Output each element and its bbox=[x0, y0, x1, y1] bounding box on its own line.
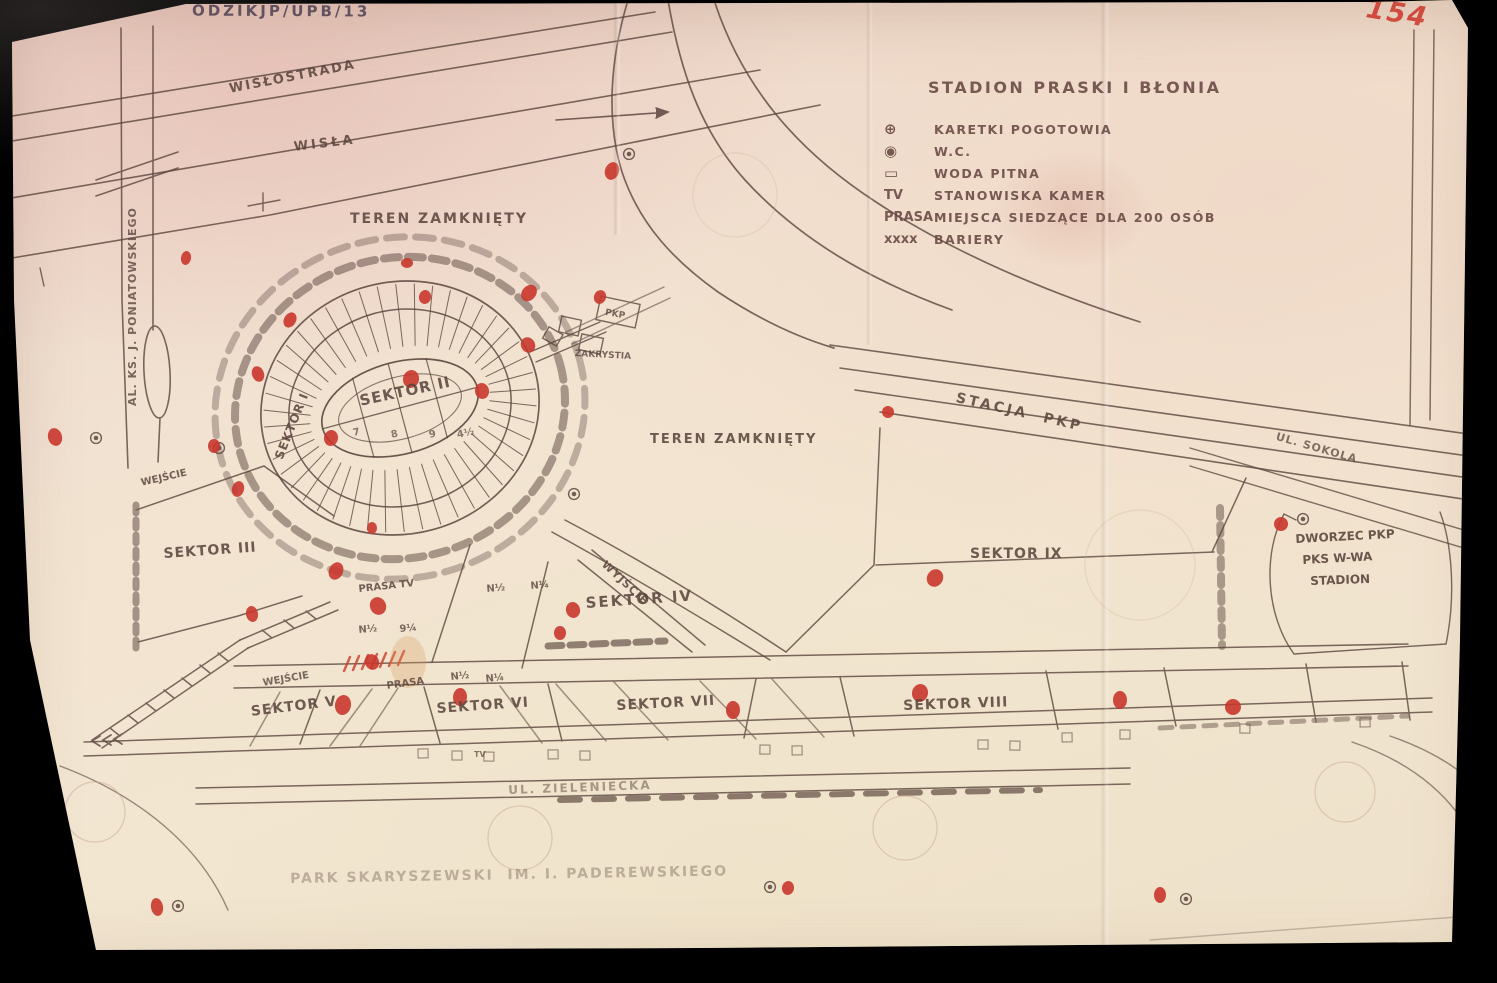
red-mark bbox=[564, 600, 582, 619]
barrier-square bbox=[580, 751, 590, 760]
facility-circle-icon bbox=[91, 433, 102, 444]
barrier-square bbox=[1120, 730, 1130, 739]
stadium-spoke bbox=[277, 351, 321, 398]
legend-label-press: MIEJSCA SIEDZĄCE DLA 200 OSÓB bbox=[934, 210, 1216, 225]
red-mark bbox=[180, 250, 192, 266]
stadium-spoke bbox=[406, 467, 425, 529]
barrier-square bbox=[1010, 741, 1020, 750]
stadium-spoke bbox=[477, 342, 523, 370]
red-mark bbox=[363, 652, 382, 672]
stadium-spoke bbox=[484, 408, 530, 450]
barrier-square bbox=[792, 746, 802, 755]
right-road bbox=[1410, 30, 1434, 425]
red-mark bbox=[1113, 691, 1127, 709]
red-mark bbox=[326, 560, 346, 582]
stadium-spoke bbox=[286, 337, 328, 389]
stadium bbox=[176, 196, 623, 621]
legend-label-water: WODA PITNA bbox=[934, 166, 1040, 181]
red-mark bbox=[46, 426, 64, 447]
red-mark bbox=[401, 368, 421, 390]
facility-circle-icon bbox=[173, 901, 184, 912]
legend-row-water: ▭ WODA PITNA bbox=[884, 162, 1216, 184]
stadium-spoke bbox=[264, 399, 310, 427]
map-title: STADION PRASKI I BŁONIA bbox=[928, 78, 1222, 97]
southwest-entrance bbox=[92, 640, 248, 748]
red-mark bbox=[245, 605, 260, 623]
red-mark bbox=[323, 429, 340, 447]
park-paths bbox=[60, 736, 1497, 940]
legend-row-ambulance: ⊕ KARETKI POGOTOWIA bbox=[884, 118, 1216, 140]
barrier-square bbox=[1062, 733, 1072, 742]
stadium-spoke bbox=[268, 432, 311, 444]
stadium-spoke bbox=[388, 470, 413, 532]
red-mark bbox=[882, 406, 894, 418]
press-marker-symbol: PRASA bbox=[884, 210, 934, 225]
stadium-spoke bbox=[479, 417, 523, 464]
stadium-spoke bbox=[265, 415, 310, 435]
red-mark bbox=[518, 335, 538, 356]
legend-label-barriers: BARIERY bbox=[934, 232, 1005, 247]
red-mark bbox=[554, 626, 566, 640]
wc-circle-icon: ◉ bbox=[884, 142, 934, 160]
stadium-spoke bbox=[472, 426, 514, 478]
facility-circle-icon bbox=[1298, 514, 1309, 525]
stadium-spoke bbox=[342, 297, 367, 359]
red-mark bbox=[1225, 699, 1241, 715]
red-mark bbox=[367, 522, 377, 534]
barrier-square bbox=[418, 749, 428, 758]
facility-circle-icon bbox=[624, 149, 635, 160]
stadium-spoke bbox=[270, 367, 316, 409]
stadium-spoke bbox=[277, 447, 323, 475]
red-mark bbox=[333, 694, 352, 716]
red-mark bbox=[452, 687, 468, 706]
legend-row-tv: TV STANOWISKA KAMER bbox=[884, 184, 1216, 206]
red-mark bbox=[150, 897, 165, 917]
stadium-spoke bbox=[455, 443, 489, 502]
red-mark bbox=[924, 566, 947, 590]
legend-label-ambulance: KARETKI POGOTOWIA bbox=[934, 122, 1112, 137]
red-mark bbox=[1154, 887, 1166, 903]
stadium-spoke bbox=[449, 306, 493, 353]
facility-circle-icon bbox=[569, 489, 580, 500]
barrier-square bbox=[760, 745, 770, 754]
barrier-square bbox=[548, 750, 558, 759]
facility-circle-icon bbox=[1181, 894, 1192, 905]
stadium-spoke bbox=[459, 316, 505, 358]
red-mark bbox=[418, 289, 432, 305]
left-avenue bbox=[96, 26, 178, 468]
red-mark bbox=[726, 701, 740, 719]
stadium-spoke bbox=[311, 313, 345, 372]
barrier-square bbox=[978, 740, 988, 749]
stadium-spoke bbox=[422, 463, 441, 525]
stadium-spoke bbox=[359, 291, 378, 353]
barrier-marker-symbol: xxxx bbox=[884, 232, 934, 247]
orange-smudge bbox=[390, 636, 426, 688]
stadium-spoke bbox=[489, 373, 532, 385]
barrier-square bbox=[452, 751, 462, 760]
red-mark bbox=[367, 594, 389, 617]
stadium-spoke bbox=[490, 389, 536, 417]
red-mark bbox=[592, 288, 608, 305]
red-mark bbox=[281, 310, 299, 330]
ghost-print-circles bbox=[65, 153, 1375, 870]
map-paper: ODZIKJP/UPB/13 154 STADION PRASKI I BŁON… bbox=[0, 0, 1497, 983]
red-mark bbox=[1271, 514, 1291, 534]
red-mark bbox=[401, 258, 413, 268]
red-mark bbox=[781, 880, 795, 896]
railway-lines bbox=[830, 345, 1497, 504]
document-code: ODZIKJP/UPB/13 bbox=[192, 2, 370, 21]
ambulance-circle-icon: ⊕ bbox=[884, 120, 934, 138]
stadium-spoke bbox=[433, 458, 458, 520]
wislostrada-roads bbox=[0, 12, 820, 286]
legend-label-wc: W.C. bbox=[934, 144, 971, 159]
legend-label-tv: STANOWISKA KAMER bbox=[934, 188, 1106, 203]
stadium-spoke bbox=[387, 284, 412, 346]
drinking-water-icon: ▭ bbox=[884, 164, 934, 182]
tv-marker-symbol: TV bbox=[884, 188, 934, 203]
map-drawing bbox=[0, 0, 1497, 983]
barrier-square bbox=[484, 752, 494, 761]
red-mark bbox=[250, 364, 267, 383]
stadium-spoke bbox=[374, 287, 393, 349]
red-mark bbox=[208, 439, 220, 453]
sector-band bbox=[84, 644, 1432, 804]
stadium-spoke bbox=[490, 381, 535, 401]
facility-circle-icon bbox=[765, 882, 776, 893]
station-area bbox=[1220, 508, 1452, 654]
legend-row-press: PRASA MIEJSCA SIEDZĄCE DLA 200 OSÓB bbox=[884, 206, 1216, 228]
red-mark bbox=[910, 682, 930, 704]
stadium-spoke bbox=[307, 463, 351, 510]
stadium-spoke bbox=[370, 471, 400, 532]
map-legend: ⊕ KARETKI POGOTOWIA ◉ W.C. ▭ WODA PITNA … bbox=[884, 118, 1216, 250]
legend-row-barriers: xxxx BARIERY bbox=[884, 228, 1216, 250]
legend-row-wc: ◉ W.C. bbox=[884, 140, 1216, 162]
stadium-spoke bbox=[353, 470, 387, 529]
